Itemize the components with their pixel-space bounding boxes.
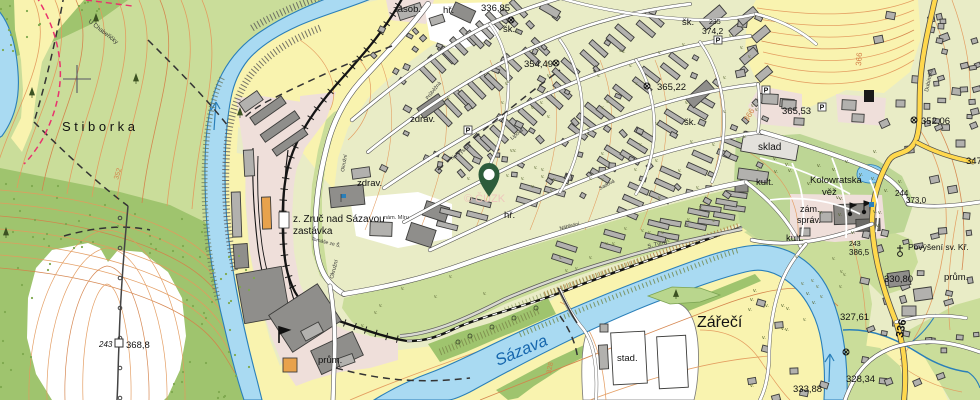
svg-text:v.: v.: [507, 79, 511, 85]
svg-text:© ČÚZK: © ČÚZK: [464, 192, 506, 205]
svg-text:v.: v.: [781, 303, 785, 309]
svg-text:336,85: 336,85: [481, 3, 510, 14]
svg-text:v.: v.: [447, 95, 451, 101]
svg-text:v.: v.: [629, 63, 633, 69]
svg-text:v.: v.: [641, 228, 645, 234]
svg-text:v.: v.: [501, 100, 505, 106]
svg-text:327,61: 327,61: [840, 312, 869, 323]
svg-text:v.: v.: [553, 177, 557, 183]
svg-text:v.: v.: [685, 100, 689, 106]
svg-text:v.: v.: [534, 165, 538, 171]
svg-text:v.: v.: [655, 158, 659, 164]
svg-text:v.: v.: [839, 196, 843, 202]
svg-text:v.: v.: [781, 326, 785, 332]
svg-text:v.: v.: [379, 303, 383, 309]
svg-text:v.: v.: [803, 317, 807, 323]
svg-text:v.: v.: [723, 75, 727, 81]
svg-text:v.: v.: [845, 159, 849, 165]
svg-text:v.: v.: [483, 291, 487, 297]
svg-text:333,88: 333,88: [793, 384, 822, 395]
svg-text:v.: v.: [374, 310, 378, 316]
svg-text:v.: v.: [832, 256, 836, 262]
svg-text:v.: v.: [690, 139, 694, 145]
svg-text:v.: v.: [612, 241, 616, 247]
svg-text:S t i b o r k a: S t i b o r k a: [62, 119, 136, 134]
svg-text:v.: v.: [541, 167, 545, 173]
svg-text:v.: v.: [531, 105, 535, 111]
svg-text:v.: v.: [832, 167, 836, 173]
svg-text:hř.: hř.: [443, 5, 454, 16]
svg-text:Povýšení sv. Kř.: Povýšení sv. Kř.: [908, 242, 969, 252]
svg-text:šk.: šk.: [503, 24, 515, 35]
svg-text:v.: v.: [606, 99, 610, 105]
svg-text:v.: v.: [516, 29, 520, 35]
svg-text:v.: v.: [597, 73, 601, 79]
svg-text:v.: v.: [757, 167, 761, 173]
svg-text:386,5: 386,5: [849, 248, 870, 257]
svg-text:zdrav.: zdrav.: [357, 178, 382, 189]
svg-text:330,80: 330,80: [884, 274, 913, 285]
svg-text:352,06: 352,06: [921, 116, 950, 127]
svg-text:365,53: 365,53: [782, 106, 811, 117]
svg-text:v.: v.: [687, 217, 691, 223]
svg-text:v.: v.: [840, 269, 844, 275]
svg-text:v.: v.: [547, 114, 551, 120]
svg-text:v.: v.: [873, 209, 877, 215]
svg-text:zásob.: zásob.: [393, 4, 421, 15]
svg-text:v.: v.: [786, 306, 790, 312]
svg-text:v.: v.: [753, 288, 757, 294]
svg-text:v.: v.: [820, 294, 824, 300]
svg-text:v.: v.: [817, 163, 821, 169]
svg-text:v.: v.: [658, 50, 662, 56]
svg-text:354,49: 354,49: [524, 59, 553, 70]
svg-text:v.: v.: [655, 121, 659, 127]
svg-text:v.: v.: [873, 149, 877, 155]
svg-text:v.: v.: [521, 176, 525, 182]
svg-text:v.: v.: [743, 134, 747, 140]
svg-text:v.: v.: [773, 156, 777, 162]
svg-text:v.: v.: [795, 254, 799, 260]
svg-text:v.: v.: [876, 223, 880, 229]
svg-text:v.: v.: [788, 168, 792, 174]
svg-text:v.: v.: [434, 294, 438, 300]
svg-text:v.: v.: [661, 230, 665, 236]
svg-text:v.: v.: [601, 177, 605, 183]
svg-text:věž: věž: [822, 187, 837, 198]
svg-text:v.: v.: [750, 383, 754, 389]
svg-text:v.: v.: [648, 230, 652, 236]
svg-text:v.: v.: [878, 210, 882, 216]
svg-text:v.: v.: [812, 300, 816, 306]
svg-text:v.: v.: [658, 195, 662, 201]
svg-text:373,0: 373,0: [906, 196, 927, 205]
svg-text:365,22: 365,22: [657, 82, 686, 93]
svg-text:v.: v.: [401, 286, 405, 292]
svg-text:328,34: 328,34: [846, 374, 875, 385]
svg-text:v.: v.: [696, 185, 700, 191]
svg-text:v.: v.: [678, 168, 682, 174]
svg-text:zám.: zám.: [800, 204, 820, 214]
svg-text:v.: v.: [898, 179, 902, 185]
svg-text:v.: v.: [801, 281, 805, 287]
svg-text:368,8: 368,8: [126, 340, 150, 351]
svg-text:v.: v.: [601, 151, 605, 157]
svg-text:správ.: správ.: [797, 215, 821, 225]
svg-text:kult.: kult.: [786, 233, 803, 244]
svg-text:v.: v.: [839, 284, 843, 290]
svg-text:v.: v.: [871, 176, 875, 182]
svg-text:P: P: [820, 105, 825, 112]
svg-text:v.: v.: [723, 109, 727, 115]
svg-text:v.: v.: [838, 212, 842, 218]
svg-text:v.: v.: [467, 176, 471, 182]
svg-text:v.: v.: [699, 205, 703, 211]
svg-text:243: 243: [849, 241, 861, 248]
svg-text:v.: v.: [605, 241, 609, 247]
svg-text:v.: v.: [361, 323, 365, 329]
svg-text:235: 235: [709, 19, 721, 26]
svg-text:v.: v.: [449, 274, 453, 280]
svg-text:v.: v.: [589, 176, 593, 182]
svg-text:v.: v.: [748, 307, 752, 313]
svg-text:Kolowratská: Kolowratská: [810, 175, 862, 186]
svg-text:v.: v.: [575, 266, 579, 272]
svg-text:v.: v.: [531, 184, 535, 190]
svg-text:v.: v.: [624, 226, 628, 232]
svg-text:v.: v.: [682, 42, 686, 48]
svg-text:v.: v.: [506, 173, 510, 179]
svg-text:kult.: kult.: [756, 177, 773, 188]
svg-text:v.: v.: [589, 255, 593, 261]
svg-text:v.: v.: [565, 268, 569, 274]
svg-text:v.: v.: [729, 33, 733, 39]
svg-text:366: 366: [854, 52, 864, 67]
svg-text:v.: v.: [601, 105, 605, 111]
svg-text:v.: v.: [712, 142, 716, 148]
svg-text:v.: v.: [587, 127, 591, 133]
svg-text:v.: v.: [740, 45, 744, 51]
svg-text:v.: v.: [634, 167, 638, 173]
svg-text:v.: v.: [635, 81, 639, 87]
svg-text:v.: v.: [748, 54, 752, 60]
svg-text:v.: v.: [513, 148, 517, 154]
svg-text:v.: v.: [774, 169, 778, 175]
svg-text:v.: v.: [762, 335, 766, 341]
svg-text:prům.: prům.: [318, 355, 342, 366]
svg-text:v.: v.: [816, 284, 820, 290]
svg-text:zdrav.: zdrav.: [410, 114, 435, 125]
svg-text:v.: v.: [851, 230, 855, 236]
svg-text:v.: v.: [619, 48, 623, 54]
svg-text:v.: v.: [750, 297, 754, 303]
svg-text:374,2: 374,2: [702, 26, 724, 36]
svg-text:v.: v.: [712, 218, 716, 224]
svg-text:v.: v.: [751, 103, 755, 109]
svg-text:v.: v.: [541, 174, 545, 180]
svg-text:P: P: [764, 88, 769, 95]
svg-text:šk.: šk.: [684, 117, 696, 128]
svg-text:P: P: [466, 128, 471, 135]
svg-text:347: 347: [966, 156, 980, 167]
svg-text:P: P: [716, 38, 721, 45]
svg-text:v.: v.: [765, 303, 769, 309]
svg-text:sklad: sklad: [758, 142, 781, 153]
svg-text:v.: v.: [811, 278, 815, 284]
svg-text:v.: v.: [639, 142, 643, 148]
svg-text:hř.: hř.: [504, 210, 515, 221]
svg-text:v.: v.: [540, 100, 544, 106]
svg-text:v.: v.: [550, 188, 554, 194]
svg-text:243: 243: [98, 340, 113, 349]
svg-text:v.: v.: [547, 73, 551, 79]
svg-text:v.: v.: [884, 188, 888, 194]
svg-text:prům.: prům.: [944, 272, 968, 283]
svg-text:v.: v.: [806, 291, 810, 297]
svg-text:v.: v.: [785, 327, 789, 333]
svg-text:z. Zruč nad Sázavou: z. Zruč nad Sázavou: [293, 214, 385, 225]
svg-text:nám. Míru: nám. Míru: [384, 215, 409, 221]
svg-text:v.: v.: [559, 255, 563, 261]
svg-text:stad.: stad.: [617, 353, 638, 364]
svg-text:šk.: šk.: [682, 17, 694, 28]
svg-text:Zářečí: Zářečí: [697, 314, 743, 331]
